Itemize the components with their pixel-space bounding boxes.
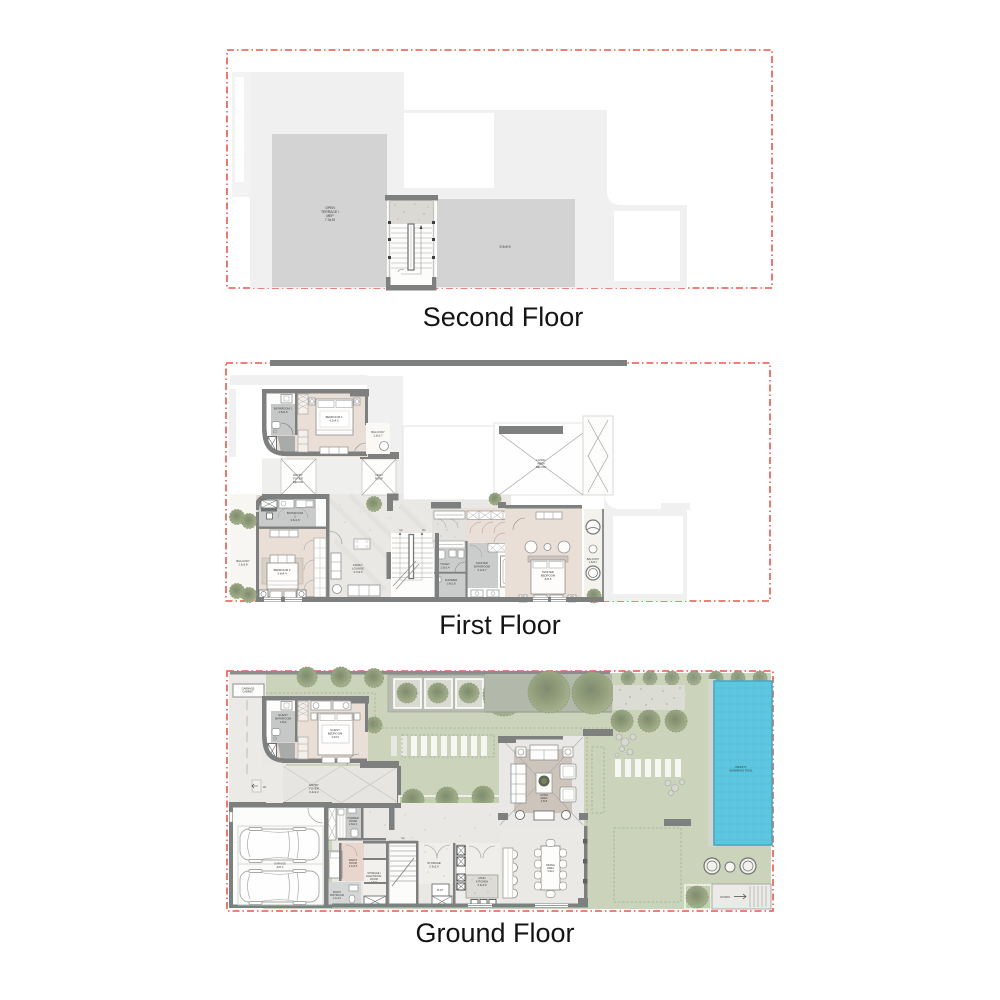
svg-text:4.9x4: 4.9x4 <box>547 869 554 873</box>
svg-text:3.7x2.5: 3.7x2.5 <box>353 570 363 574</box>
svg-text:4.3x4.5: 4.3x4.5 <box>329 419 339 423</box>
svg-text:PLNT: PLNT <box>437 889 444 892</box>
svg-text:6x5.5: 6x5.5 <box>545 577 552 581</box>
svg-text:1.8x1.8: 1.8x1.8 <box>446 582 456 586</box>
svg-text:1.5x4: 1.5x4 <box>280 720 287 724</box>
svg-text:6x6.3: 6x6.3 <box>277 865 284 869</box>
svg-text:6.4x2.2: 6.4x2.2 <box>309 790 319 794</box>
svg-text:DOWN: DOWN <box>720 895 730 899</box>
svg-text:7.3x10: 7.3x10 <box>325 218 335 222</box>
svg-text:1.6x2.1: 1.6x2.1 <box>349 823 358 826</box>
svg-text:1.5x4.5: 1.5x4.5 <box>278 410 288 414</box>
svg-text:Up: Up <box>401 836 405 840</box>
svg-text:Dn: Dn <box>422 528 426 532</box>
svg-text:1.5x5.8: 1.5x5.8 <box>238 563 248 567</box>
svg-text:2.1x3.5: 2.1x3.5 <box>349 865 358 868</box>
svg-text:1.5x5.7: 1.5x5.7 <box>589 560 598 564</box>
svg-text:9.9x9.9: 9.9x9.9 <box>499 245 510 249</box>
svg-text:3.6x1.8: 3.6x1.8 <box>290 518 300 522</box>
svg-text:2.1x1.6: 2.1x1.6 <box>333 897 342 900</box>
svg-text:2.9x2.9: 2.9x2.9 <box>429 865 439 869</box>
svg-text:SWIMMING POOL: SWIMMING POOL <box>729 769 753 773</box>
svg-text:1.5x1.4: 1.5x1.4 <box>440 566 450 570</box>
svg-text:Second Floor: Second Floor <box>423 302 584 332</box>
svg-text:3.1x3.7: 3.1x3.7 <box>477 568 487 572</box>
svg-text:ROOF: ROOF <box>375 477 383 481</box>
svg-text:BELOW: BELOW <box>293 480 303 484</box>
svg-text:Ground Floor: Ground Floor <box>415 918 574 948</box>
svg-text:4.5x5: 4.5x5 <box>541 799 548 803</box>
svg-text:4.3X4: 4.3X4 <box>331 735 339 739</box>
svg-text:3.1x3.9: 3.1x3.9 <box>477 883 487 887</box>
svg-text:BELOW: BELOW <box>536 465 546 469</box>
svg-text:3.6x4.4: 3.6x4.4 <box>277 572 287 576</box>
svg-text:1.5x1.7: 1.5x1.7 <box>373 434 383 438</box>
svg-text:Up: Up <box>399 528 403 532</box>
svg-text:First Floor: First Floor <box>439 610 561 640</box>
svg-text:CABINET: CABINET <box>242 690 254 694</box>
